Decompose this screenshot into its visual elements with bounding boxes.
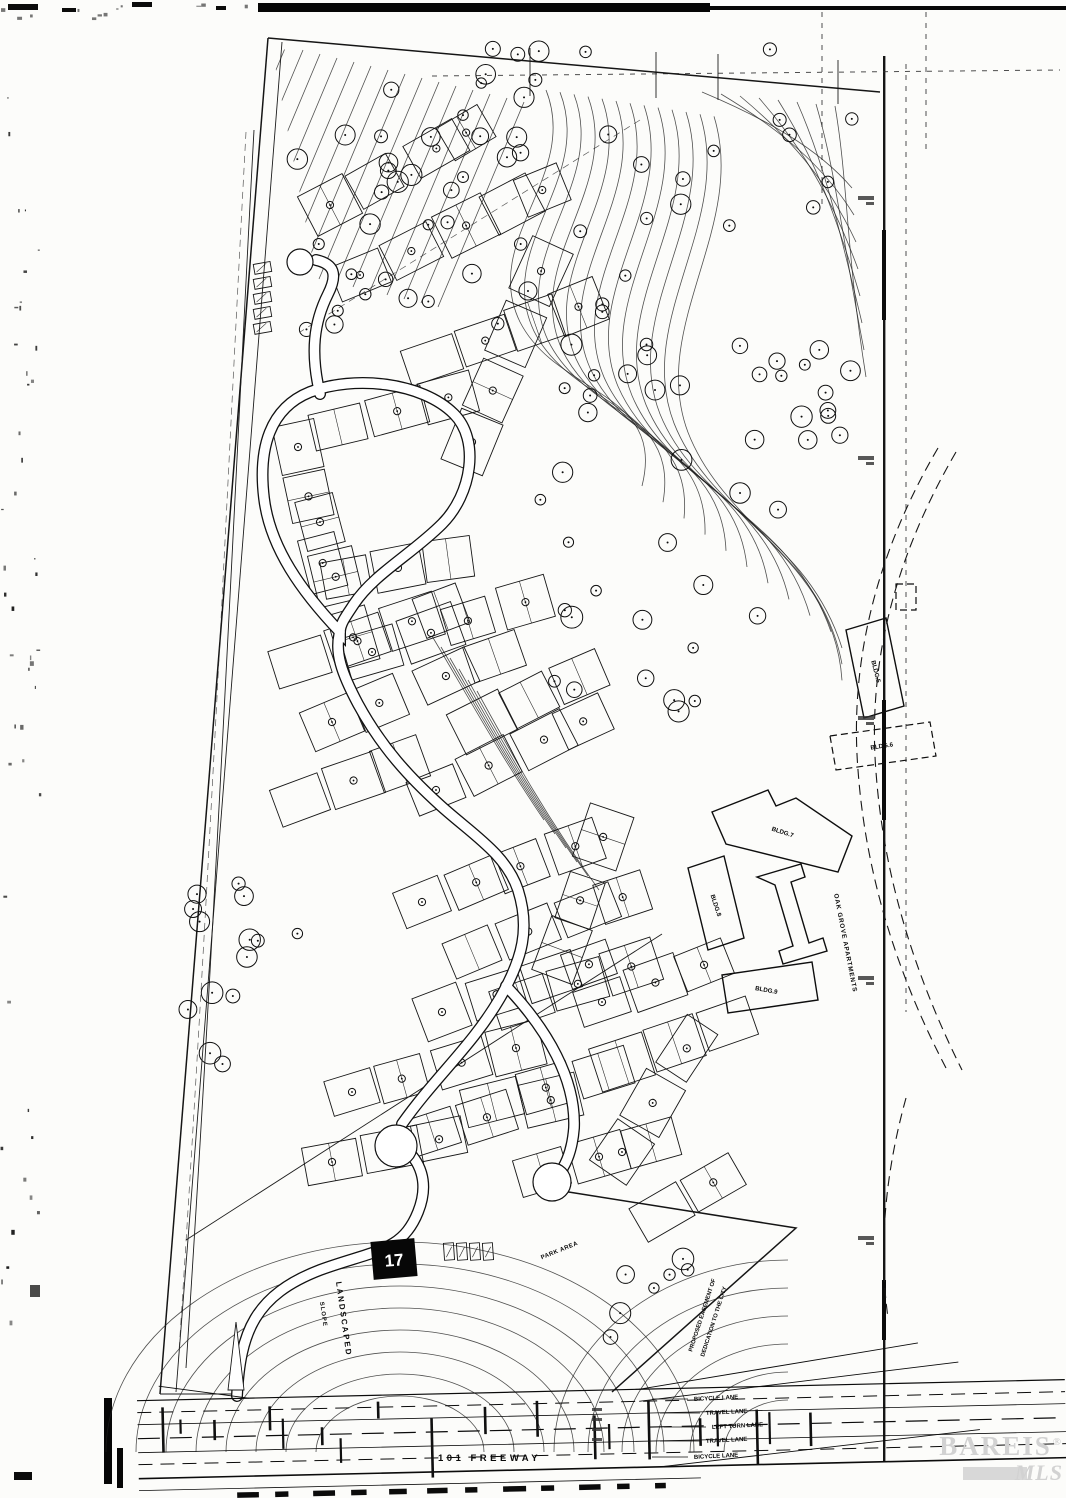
watermark-mls: MLS — [1015, 1462, 1063, 1484]
slope-label: SLOPE — [318, 1301, 327, 1327]
apartments-label: OAK GROVE APARTMENTS — [832, 893, 858, 993]
tree-symbols — [179, 41, 860, 1344]
lane-label-travel-bottom: TRAVEL LANE — [706, 1437, 748, 1445]
lot-17-marker-label: 17 — [384, 1250, 405, 1271]
cul-de-sac-bulb — [375, 1125, 417, 1167]
pool-structure — [757, 864, 827, 964]
lane-label-left-turn: LEFT TURN LANE — [712, 1422, 764, 1431]
scanned-site-plan-page: 101 FREEWAY BICYCLE LANE TRAVEL LANE LEF… — [0, 0, 1066, 1498]
lane-label-travel-top: TRAVEL LANE — [706, 1409, 748, 1417]
tree-grove-hatch — [200, 46, 524, 307]
bldg-9-label: BLDG.9 — [754, 985, 778, 996]
oak-grove-apartments — [688, 448, 962, 1318]
internal-roads — [228, 249, 574, 1396]
registered-mark-icon: ® — [1053, 1436, 1063, 1448]
easement-label-line2: DEDICATION TO THE CITY — [700, 1286, 728, 1358]
parcel-boundary — [160, 38, 880, 1394]
park-area-label: PARK AREA — [540, 1241, 579, 1261]
site-plan-map: 101 FREEWAY BICYCLE LANE TRAVEL LANE LEF… — [0, 0, 1066, 1498]
landscaped-label: LANDSCAPED — [334, 1281, 353, 1357]
bareis-mls-watermark: BAREIS® MLS — [939, 1433, 1063, 1484]
lane-label-bicycle-top: BICYCLE LANE — [694, 1395, 739, 1403]
bldg-7-label: BLDG.7 — [771, 826, 795, 840]
bldg-8-label: BLDG.8 — [709, 894, 723, 918]
misc-marks — [370, 196, 874, 1457]
watermark-brand: BAREIS® — [939, 1433, 1063, 1460]
lane-label-bicycle-bottom: BICYCLE LANE — [694, 1453, 739, 1461]
contour-lines — [106, 90, 866, 1452]
hammerhead-bulb — [287, 249, 313, 275]
cul-de-sac-bulb-2 — [533, 1163, 571, 1201]
freeway-label: 101 FREEWAY — [438, 1453, 541, 1464]
